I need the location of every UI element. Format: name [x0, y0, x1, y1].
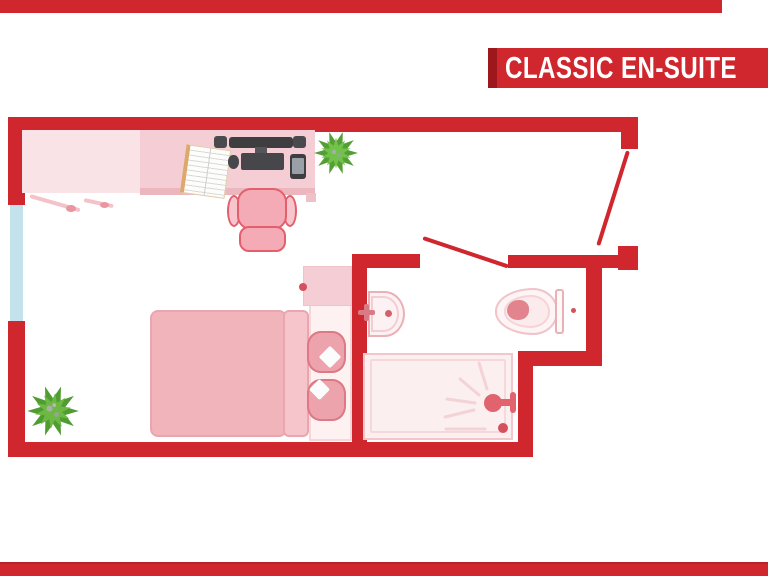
- speaker-icon-2: [293, 136, 306, 148]
- toilet-water: [507, 300, 529, 320]
- smartphone-screen: [292, 158, 304, 174]
- wall-bottom: [8, 442, 533, 457]
- toilet-cistern: [555, 289, 564, 334]
- title-banner: CLASSIC EN-SUITE: [488, 48, 768, 88]
- bed-duvet: [150, 310, 287, 437]
- floor-plant-icon: [24, 384, 82, 438]
- duvet-fold: [283, 310, 309, 437]
- desk-front-shadow: [140, 188, 315, 195]
- page-title: CLASSIC EN-SUITE: [505, 48, 737, 88]
- desk-leg-right: [306, 193, 316, 202]
- wall-entry-lower-stub: [618, 246, 638, 270]
- window: [10, 205, 23, 321]
- table-knob: [299, 283, 307, 291]
- wall-left-lower: [8, 321, 25, 457]
- top-page-bar: [0, 0, 722, 13]
- bathroom-door: [422, 236, 509, 268]
- desk-foot: [66, 205, 76, 212]
- desk-leg-left-2: [84, 198, 114, 208]
- bottom-page-bar: [0, 562, 768, 576]
- wall-bath-top: [352, 254, 420, 268]
- mouse: [228, 155, 239, 169]
- tap-icon-v: [364, 304, 369, 321]
- chair-backrest: [239, 226, 286, 252]
- wall-top-right-stub: [621, 117, 638, 149]
- banner-shadow-strip: [488, 48, 497, 88]
- floor-plan-page: CLASSIC EN-SUITE: [0, 0, 768, 576]
- sink-drain: [385, 310, 392, 317]
- shower-arm-mount: [510, 392, 516, 413]
- flush-button: [571, 308, 576, 313]
- speaker-icon: [214, 136, 227, 148]
- desk-return: [22, 130, 140, 193]
- wall-bath-right: [586, 255, 602, 366]
- wall-shower-right: [518, 351, 533, 457]
- bedside-table: [303, 266, 352, 306]
- desk-foot-2: [100, 202, 109, 208]
- shower-drain: [498, 423, 508, 433]
- desk-plant-icon: [312, 130, 360, 176]
- chair-seat: [237, 188, 287, 230]
- keyboard: [241, 153, 284, 170]
- open-book: [180, 144, 231, 199]
- entry-door: [596, 150, 630, 246]
